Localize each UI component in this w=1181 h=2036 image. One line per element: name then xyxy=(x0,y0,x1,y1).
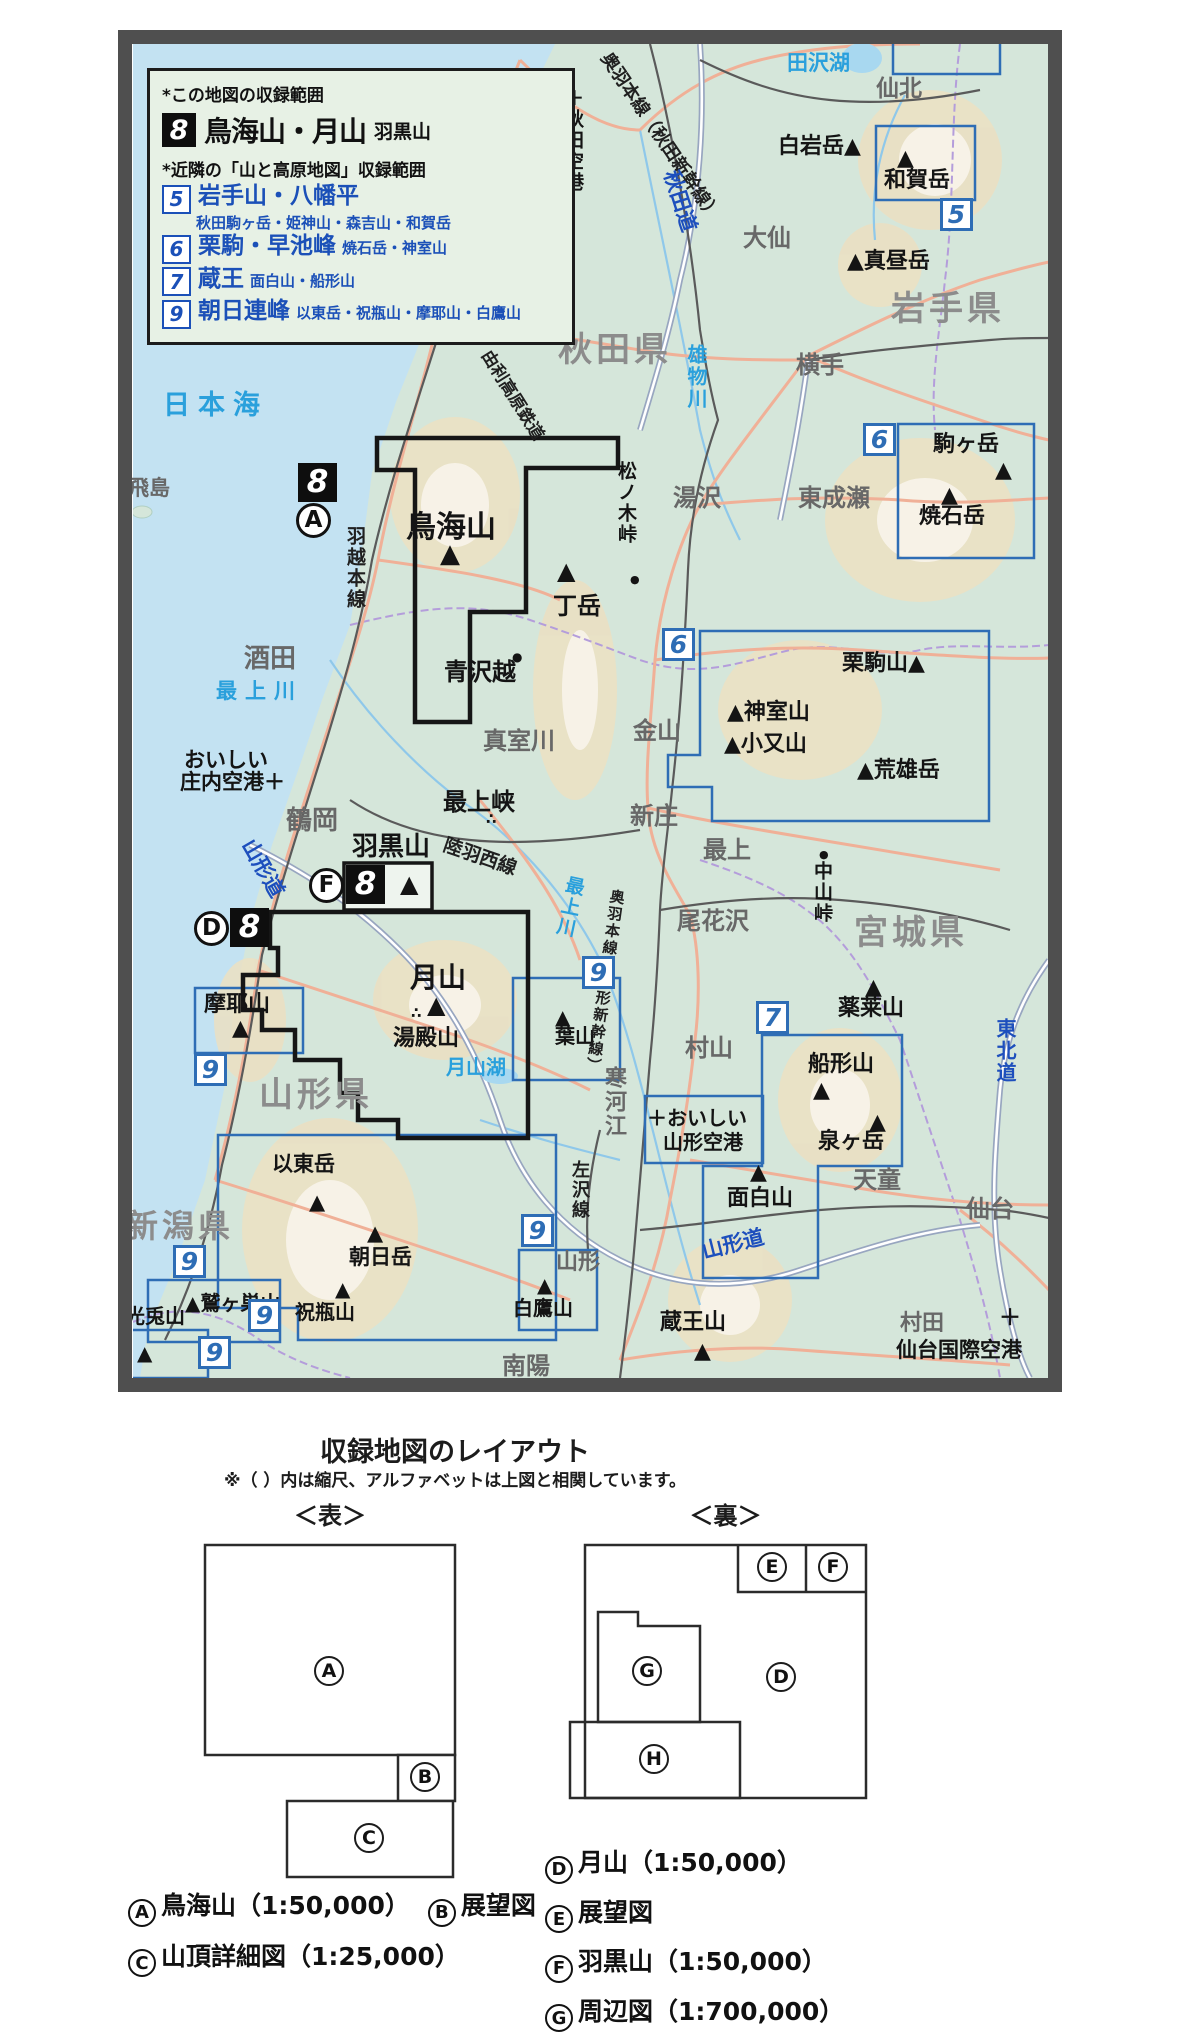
label-mamurogawa: 真室川 xyxy=(483,729,555,753)
label-izumigatake: 泉ヶ岳 xyxy=(818,1131,884,1153)
label-iwate-pref: 岩手県 xyxy=(891,292,1005,326)
coverage-map-page: *この地図の収録範囲 8 鳥海山・月山 羽黒山 *近隣の「山と高原地図」収録範囲… xyxy=(0,0,1181,2036)
mark-shirataka: ▲ xyxy=(537,1275,552,1295)
legend-main-title: 8 鳥海山・月山 羽黒山 xyxy=(162,110,562,150)
caption: B展望図 xyxy=(428,1886,536,1927)
label-niigata-pref: 新潟県 xyxy=(126,1210,234,1242)
badge-6-large: 6 xyxy=(662,628,695,661)
diagram-cell-a: A xyxy=(314,1656,344,1686)
label-yamagata-pref: 山形県 xyxy=(259,1078,373,1112)
label-nakayamatoge: 中山峠 xyxy=(812,861,831,924)
caption-letter: G xyxy=(545,2004,573,2032)
legend-item-sub: 秋田駒ヶ岳・姫神山・森吉山・和賀岳 xyxy=(196,215,562,232)
caption-letter: E xyxy=(545,1905,573,1933)
label-sakata: 酒田 xyxy=(244,646,296,672)
back-captions: D月山（1:50,000） E展望図 F羽黒山（1:50,000） G周辺図（1… xyxy=(545,1843,975,2036)
label-akita-pref: 秋田県 xyxy=(558,333,672,367)
badge-6-small: 6 xyxy=(863,423,896,456)
badge-8-f: 8 xyxy=(346,865,385,904)
label-mogamikyo: 最上峡 xyxy=(443,790,515,814)
layout-section-note: ※（ ）内は縮尺、アルファベットは上図と相関しています。 xyxy=(135,1466,775,1491)
label-iwaibegamiyama: 祝瓶山 xyxy=(295,1302,355,1322)
label-shinjo: 新庄 xyxy=(630,804,678,828)
badge-9-kosagi: 9 xyxy=(198,1336,231,1369)
mark-funagatayama: ▲ xyxy=(813,1080,830,1102)
label-nihonkai: 日本海 xyxy=(163,392,268,419)
legend-note-this: *この地図の収録範囲 xyxy=(162,81,562,106)
diagram-back xyxy=(570,1545,866,1798)
mark-itodake: ▲ xyxy=(309,1192,325,1213)
dots-mogamikyo: ∴ xyxy=(486,812,496,827)
caption: G周辺図（1:700,000） xyxy=(545,1992,975,2033)
legend-item-number: 5 xyxy=(162,185,191,214)
legend-item: 9朝日連峰以東岳・祝瓶山・摩耶山・白鷹山 xyxy=(162,299,562,329)
caption-letter: B xyxy=(428,1899,456,1927)
label-omoshiroyama: 面白山 xyxy=(727,1188,793,1210)
legend-box: *この地図の収録範囲 8 鳥海山・月山 羽黒山 *近隣の「山と高原地図」収録範囲… xyxy=(147,68,575,345)
circle-d: D xyxy=(194,911,229,946)
label-shonai-airport-1: おいしい xyxy=(184,750,268,771)
label-mayasan: 摩耶山 xyxy=(204,994,270,1016)
badge-9-hayama: 9 xyxy=(582,956,615,989)
legend-item-sub: 焼石岳・神室山 xyxy=(342,239,447,257)
mark-hinokamidake: ▲ xyxy=(557,559,575,583)
legend-item-number: 9 xyxy=(162,300,191,329)
diagram-cell-e: E xyxy=(757,1552,787,1582)
mark-iwaibegamiyama: ▲ xyxy=(335,1279,350,1299)
label-yuzawa: 湯沢 xyxy=(673,486,721,510)
label-komatayama: ▲小又山 xyxy=(724,734,807,756)
label-shirataka: 白鷹山 xyxy=(513,1298,573,1318)
layout-section-title: 収録地図のレイアウト xyxy=(255,1430,655,1469)
caption-text: 周辺図（1:700,000） xyxy=(578,1997,844,2026)
legend-note-nearby: *近隣の「山と高原地図」収録範囲 xyxy=(162,156,562,181)
legend-item: 5岩手山・八幡平秋田駒ヶ岳・姫神山・森吉山・和賀岳 xyxy=(162,184,562,231)
caption: A鳥海山（1:50,000） xyxy=(128,1886,410,1927)
label-yokote: 横手 xyxy=(796,353,844,377)
badge-9-iwaibegami: 9 xyxy=(248,1299,281,1332)
island-tobishima xyxy=(132,506,152,518)
caption: D月山（1:50,000） xyxy=(545,1843,975,1884)
label-mogamigawa: 最上川 xyxy=(216,681,303,702)
label-matsunokitoge: 松ノ木峠 xyxy=(616,461,635,545)
label-higashinaruse: 東成瀬 xyxy=(798,486,870,510)
mark-wagadake: ▲ xyxy=(897,148,914,170)
caption-text: 山頂詳細図（1:25,000） xyxy=(161,1942,460,1971)
label-daisen: 大仙 xyxy=(743,226,791,250)
legend-badge-8: 8 xyxy=(162,113,196,147)
diagram-cell-c: C xyxy=(354,1823,384,1853)
label-araodake: ▲荒雄岳 xyxy=(857,760,940,782)
label-kurikomayama: 栗駒山▲ xyxy=(842,653,925,675)
mark-komagatake: ▲ xyxy=(995,460,1012,482)
label-murata: 村田 xyxy=(900,1313,944,1335)
label-tazawako: 田沢湖 xyxy=(787,53,850,74)
label-tendo: 天童 xyxy=(853,1168,901,1192)
caption-letter: A xyxy=(128,1899,156,1927)
diagram-cell-f: F xyxy=(818,1552,848,1582)
badge-5: 5 xyxy=(940,198,973,231)
legend-item-title: 岩手山・八幡平 xyxy=(198,183,359,209)
label-miyagi-pref: 宮城県 xyxy=(854,916,968,950)
legend-item-number: 6 xyxy=(162,235,191,264)
label-tohoku-expwy: 東北道 xyxy=(995,1018,1015,1084)
caption-text: 展望図 xyxy=(578,1898,653,1927)
label-tobishima: 飛島 xyxy=(128,478,170,499)
label-shiraiwadake: 白岩岳▲ xyxy=(778,136,861,158)
label-yakeishidake: 焼石岳 xyxy=(919,506,985,528)
label-gassanko: 月山湖 xyxy=(446,1057,506,1077)
label-yamagata-airport-1: ＋おいしい xyxy=(647,1108,747,1128)
dot-nakayamatoge: ● xyxy=(819,849,829,860)
label-yamagata-city: 山形 xyxy=(556,1252,600,1274)
label-aterazawa-line: 左沢線 xyxy=(570,1160,588,1220)
dot-matsunokitoge: ● xyxy=(630,574,640,585)
label-komagatake: 駒ヶ岳 xyxy=(933,434,999,456)
label-itodake: 以東岳 xyxy=(272,1154,335,1175)
label-wagadake: 和賀岳 xyxy=(884,170,950,192)
label-obanazawa: 尾花沢 xyxy=(677,909,749,933)
label-yamagata-airport-2: 山形空港 xyxy=(663,1132,743,1152)
label-senboku: 仙北 xyxy=(876,78,922,101)
label-kaneyama: 金山 xyxy=(633,719,681,743)
mark-mayasan: ▲ xyxy=(232,1018,249,1040)
label-funagatayama: 船形山 xyxy=(808,1054,874,1076)
mark-hagurosan: ▲ xyxy=(400,872,418,896)
cross-sendai-airport: ＋ xyxy=(999,1308,1021,1330)
label-zaozan: 蔵王山 xyxy=(660,1312,726,1334)
diagram-cell-g: G xyxy=(632,1656,662,1686)
mark-zaozan: ▲ xyxy=(694,1341,711,1363)
mark-kosagiyama: ▲ xyxy=(137,1343,152,1363)
label-mahirudake: ▲真昼岳 xyxy=(847,251,930,273)
caption: C山頂詳細図（1:25,000） xyxy=(128,1937,460,1978)
caption: F羽黒山（1:50,000） xyxy=(545,1942,975,1983)
back-heading: ＜裏＞ xyxy=(585,1496,866,1531)
label-sagae: 寒河江 xyxy=(602,1066,624,1138)
label-sendai-airport: 仙台国際空港 xyxy=(896,1340,1022,1361)
front-heading: ＜表＞ xyxy=(205,1496,455,1531)
circle-f: F xyxy=(309,868,344,903)
label-uetsu-line: 羽越本線 xyxy=(345,526,364,610)
label-asahidake: 朝日岳 xyxy=(349,1247,412,1268)
label-murayama: 村山 xyxy=(685,1036,733,1060)
label-aosawagoe: 青沢越 xyxy=(444,660,516,684)
label-nanyo: 南陽 xyxy=(502,1354,550,1378)
mark-gassan: ▲ xyxy=(427,993,445,1017)
badge-9-washigasu: 9 xyxy=(173,1245,206,1278)
label-omonogawa: 雄物川 xyxy=(686,344,706,410)
legend-item-title: 朝日連峰 xyxy=(198,298,290,324)
caption-letter: F xyxy=(545,1955,573,1983)
mark-chokaisan: ▲ xyxy=(440,541,460,567)
legend-item: 6栗駒・早池峰焼石岳・神室山 xyxy=(162,234,562,264)
legend-item-sub: 面白山・船形山 xyxy=(250,272,355,290)
caption-text: 羽黒山（1:50,000） xyxy=(578,1947,827,1976)
legend-item-title: 蔵王 xyxy=(198,266,244,292)
label-yakuraisan: 薬莱山 xyxy=(838,998,904,1020)
legend-item-title: 栗駒・早池峰 xyxy=(198,233,336,259)
label-gassan: 月山 xyxy=(410,964,466,992)
circle-a: A xyxy=(296,503,331,538)
legend-items: 5岩手山・八幡平秋田駒ヶ岳・姫神山・森吉山・和賀岳 6栗駒・早池峰焼石岳・神室山… xyxy=(162,184,562,329)
legend-item: 7蔵王面白山・船形山 xyxy=(162,267,562,297)
label-tsuruoka: 鶴岡 xyxy=(286,808,338,834)
label-hinokamidake: 丁岳 xyxy=(553,594,601,618)
label-shonai-airport-2: 庄内空港＋ xyxy=(180,772,285,793)
mark-omoshiroyama: ▲ xyxy=(750,1162,767,1184)
caption-text: 鳥海山（1:50,000） xyxy=(161,1891,410,1920)
legend-item-sub: 以東岳・祝瓶山・摩耶山・白鷹山 xyxy=(296,304,521,322)
caption-letter: C xyxy=(128,1949,156,1977)
badge-7: 7 xyxy=(756,1001,789,1034)
caption-letter: D xyxy=(545,1856,573,1884)
legend-item-number: 7 xyxy=(162,267,191,296)
label-hagurosan: 羽黒山 xyxy=(352,834,430,860)
label-mogami: 最上 xyxy=(703,838,751,862)
label-kosagiyama: 光兎山 xyxy=(125,1306,185,1326)
label-yudonosan: 湯殿山 xyxy=(393,1028,459,1050)
badge-9-maya: 9 xyxy=(194,1053,227,1086)
dots-yudonosan: ∴ xyxy=(411,1006,421,1021)
label-kamuroyama: ▲神室山 xyxy=(727,702,810,724)
label-sendai: 仙台 xyxy=(966,1197,1014,1221)
mark-asahidake: ▲ xyxy=(367,1223,383,1244)
diagram-cell-b: B xyxy=(410,1762,440,1792)
diagram-cell-d: D xyxy=(766,1662,796,1692)
diagram-front xyxy=(205,1545,455,1877)
badge-9-shirataka: 9 xyxy=(521,1214,554,1247)
badge-8-a: 8 xyxy=(298,463,337,502)
diagram-cell-h: H xyxy=(639,1744,669,1774)
caption-text: 月山（1:50,000） xyxy=(578,1848,802,1877)
caption: E展望図 xyxy=(545,1893,975,1934)
caption-text: 展望図 xyxy=(461,1891,536,1920)
front-captions: A鳥海山（1:50,000） B展望図 C山頂詳細図（1:25,000） xyxy=(128,1886,578,1987)
badge-8-d: 8 xyxy=(230,908,269,947)
